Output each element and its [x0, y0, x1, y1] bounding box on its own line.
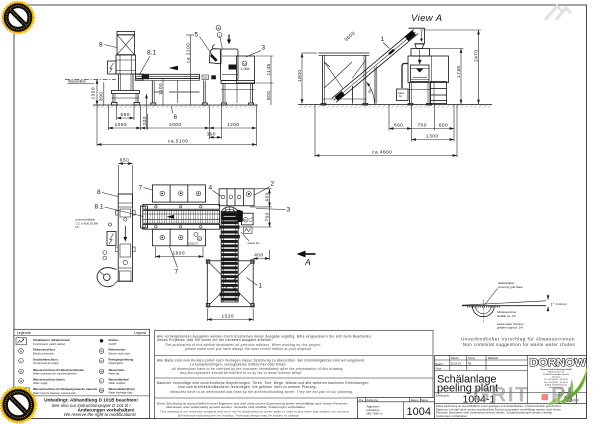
svg-text:2: 2	[271, 181, 275, 188]
svg-text:We reserve the right to modifi: We reserve the right to modifications!	[64, 412, 137, 417]
svg-text:1800: 1800	[297, 70, 303, 82]
svg-text:7: 7	[139, 185, 143, 192]
svg-text:Schaltkasten, Schaltschrank: Schaltkasten, Schaltschrank	[33, 338, 70, 342]
svg-text:200: 200	[142, 116, 148, 125]
svg-text:Ein/Aus: Ein/Aus	[109, 338, 120, 342]
svg-text:Datum: Datum	[411, 398, 419, 402]
svg-text:23.03.20: 23.03.20	[451, 361, 462, 365]
svg-text:View A: View A	[411, 13, 442, 24]
svg-text:ca.5100: ca.5100	[168, 139, 188, 145]
svg-text:Druckluftanschluss: Druckluftanschluss	[33, 357, 58, 361]
svg-text:Compressed air supply: Compressed air supply	[33, 362, 59, 365]
svg-text:DORNOW: DORNOW	[530, 357, 587, 369]
svg-text:1200: 1200	[227, 122, 239, 128]
svg-text:7: 7	[175, 269, 179, 276]
svg-text:Wasserlinie: Wasserlinie	[68, 80, 86, 84]
svg-text:DIN 7168 -m: DIN 7168 -m	[367, 412, 384, 416]
svg-text:W: W	[20, 370, 23, 374]
svg-text:überlassen oder anderweitig ge: überlassen oder anderweitig genutzt werd…	[166, 405, 306, 409]
svg-text:3: 3	[262, 45, 266, 52]
svg-text:Cleaningdoor: Cleaningdoor	[109, 362, 124, 365]
svg-text:360: 360	[207, 131, 216, 137]
svg-text:ca.4600: ca.4600	[372, 150, 392, 156]
svg-text:A: A	[304, 257, 311, 267]
svg-text:R: R	[101, 359, 103, 363]
svg-text:Unverbindlicher Vorschlag für: Unverbindlicher Vorschlag für Abwasserri…	[461, 337, 575, 342]
svg-text:400: 400	[254, 253, 263, 259]
svg-text:M: M	[244, 218, 246, 222]
svg-text:Non commital suggestion for wa: Non commital suggestion for waste water …	[463, 342, 575, 347]
svg-text:8.1: 8.1	[95, 204, 104, 211]
svg-text:4: 4	[209, 185, 213, 192]
svg-text:Water hose for cleaning, custo: Water hose for cleaning, customerside	[33, 392, 76, 395]
svg-text:Wiesenstraße 12: Wiesenstraße 12	[548, 370, 565, 373]
svg-text:On/Off: On/Off	[109, 343, 117, 346]
svg-text:800: 800	[266, 91, 272, 100]
svg-text:PL: PL	[551, 383, 581, 407]
svg-text:Any discrepancies should be no: Any discrepancies should be notified to …	[179, 371, 302, 375]
svg-text:Name: Name	[421, 398, 428, 402]
svg-text:Pos.: Pos.	[359, 398, 364, 402]
svg-text:Legende: Legende	[17, 331, 31, 335]
svg-text:Water discharge (tap): Water discharge (tap)	[109, 392, 133, 395]
svg-text:measures have to be determined: measures have to be determined and fixed…	[170, 390, 353, 394]
svg-text:W: W	[20, 379, 23, 383]
svg-text:(minimum): (minimum)	[556, 303, 567, 306]
svg-text:1,1kW: 1,1kW	[241, 67, 250, 71]
svg-text:Water overflow: Water overflow	[109, 382, 126, 385]
svg-text:1520: 1520	[222, 314, 234, 320]
svg-text:3: 3	[287, 207, 291, 214]
svg-text:Reinigungsöffnung: Reinigungsöffnung	[109, 357, 134, 361]
svg-text:2000: 2000	[169, 122, 181, 128]
svg-text:Electric connection: Electric connection	[33, 352, 55, 355]
svg-text:1°: 1°	[551, 301, 555, 306]
svg-text:Germany: Germany	[552, 376, 562, 379]
svg-text:Wasseranschluss für Reinigungs: Wasseranschluss für Reinigungszwecke, ba…	[33, 387, 98, 391]
svg-text:Änderungen vorbehalten.: Änderungen vorbehalten.	[436, 414, 468, 418]
svg-text:650: 650	[121, 112, 130, 118]
svg-text:ca 2100: ca 2100	[185, 43, 191, 63]
svg-text:700: 700	[264, 212, 270, 221]
svg-text:1: 1	[381, 36, 385, 43]
svg-text:waste bin: waste bin	[248, 241, 261, 245]
svg-text:covering grid plate: covering grid plate	[498, 285, 523, 289]
svg-text:Control panel, switch cabinet: Control panel, switch cabinet	[33, 343, 65, 346]
svg-text:TWL: TWL	[203, 76, 209, 80]
svg-text:Water supply: Water supply	[33, 382, 48, 385]
svg-text:700: 700	[418, 123, 427, 129]
svg-text:8.1: 8.1	[147, 50, 156, 57]
svg-text:Water tap: Water tap	[109, 373, 120, 376]
svg-text:FU: FU	[76, 225, 80, 229]
svg-text:1100: 1100	[158, 83, 164, 95]
svg-text:Wasserhahn: Wasserhahn	[109, 368, 125, 372]
svg-text:8: 8	[97, 189, 101, 196]
svg-text:1004: 1004	[407, 406, 431, 418]
svg-text:Wasserüberlauf: Wasserüberlauf	[109, 378, 129, 382]
svg-text:5: 5	[195, 32, 199, 39]
svg-text:Datum: Datum	[451, 356, 459, 360]
svg-text:Dornow food technology GmbH: Dornow food technology GmbH	[540, 368, 572, 371]
svg-text:Wasseranschluss für Maschinen/: Wasseranschluss für Maschinen/Geräte	[33, 368, 84, 372]
svg-text:dieses Projektes, daß Sie imme: dieses Projektes, daß Sie immer mit der …	[157, 338, 272, 342]
svg-text:Gepr.: Gepr.	[436, 367, 443, 371]
svg-text:Elektromotor: Elektromotor	[109, 348, 126, 352]
svg-text:600: 600	[264, 192, 270, 201]
svg-text:1800: 1800	[173, 251, 185, 257]
svg-text:Gefälle ca. 1%: Gefälle ca. 1%	[497, 314, 516, 318]
svg-text:Zeichng.Nr:: Zeichng.Nr:	[436, 394, 451, 398]
svg-text:6: 6	[174, 114, 178, 121]
svg-text:1745: 1745	[456, 66, 462, 78]
svg-text:0,55/0,75: 0,55/0,75	[188, 243, 199, 246]
svg-text:Maßstab: Maßstab	[488, 356, 499, 360]
svg-text:890: 890	[99, 92, 105, 101]
svg-text:GRIT: GRIT	[473, 383, 529, 407]
svg-text:Änderung: Änderung	[367, 398, 379, 402]
svg-text:please make sure you have alwa: please make sure you have always the mos…	[184, 347, 312, 351]
svg-text:Elektroanschluss: Elektroanschluss	[33, 348, 56, 352]
svg-text:1145: 1145	[266, 63, 272, 75]
svg-text:Wasseranschluss (leiter): Wasseranschluss (leiter)	[33, 378, 65, 382]
svg-text:650: 650	[120, 158, 129, 164]
svg-text:1: 1	[259, 283, 263, 290]
svg-text:D-40549 Düsseldorf (Lörick): D-40549 Düsseldorf (Lörick)	[543, 373, 569, 376]
svg-text:2470: 2470	[473, 50, 479, 62]
svg-text:1000: 1000	[91, 87, 97, 99]
svg-text:E: E	[218, 26, 220, 30]
svg-text:Electric motor drive: Electric motor drive	[109, 352, 131, 355]
svg-text:8: 8	[99, 42, 103, 49]
svg-text:M: M	[198, 237, 200, 241]
svg-text:gradient approx. 1%: gradient approx. 1%	[497, 326, 523, 330]
svg-text:Legend: Legend	[134, 331, 147, 335]
svg-text:E: E	[20, 349, 22, 353]
svg-text:1300: 1300	[426, 134, 438, 140]
svg-text:660: 660	[394, 123, 403, 129]
svg-text:WA: WA	[100, 390, 104, 393]
svg-text:sind vom Architekten/Bauherrn: sind vom Architekten/Bauherrn festzulege…	[178, 385, 317, 389]
svg-text:Wasserablauf (Kran): Wasserablauf (Kran)	[109, 387, 135, 391]
svg-text:FB.: FB.	[468, 361, 472, 365]
svg-text:Bearb.: Bearb.	[436, 362, 444, 366]
svg-text:Ü: Ü	[100, 380, 102, 383]
svg-text:Dimensions indicated are not b: Dimensions indicated are not binding. Te…	[178, 413, 300, 417]
svg-text:1050: 1050	[115, 122, 127, 128]
svg-text:zu benachrichtigen, vorzugswei: zu benachrichtigen, vorzugsweise mittels…	[190, 363, 287, 367]
svg-text:600: 600	[439, 123, 448, 129]
svg-text:Name: Name	[468, 356, 475, 360]
svg-text:WF: WF	[100, 371, 104, 374]
svg-text:Water connection for machines/: Water connection for machines/devices	[33, 373, 77, 376]
